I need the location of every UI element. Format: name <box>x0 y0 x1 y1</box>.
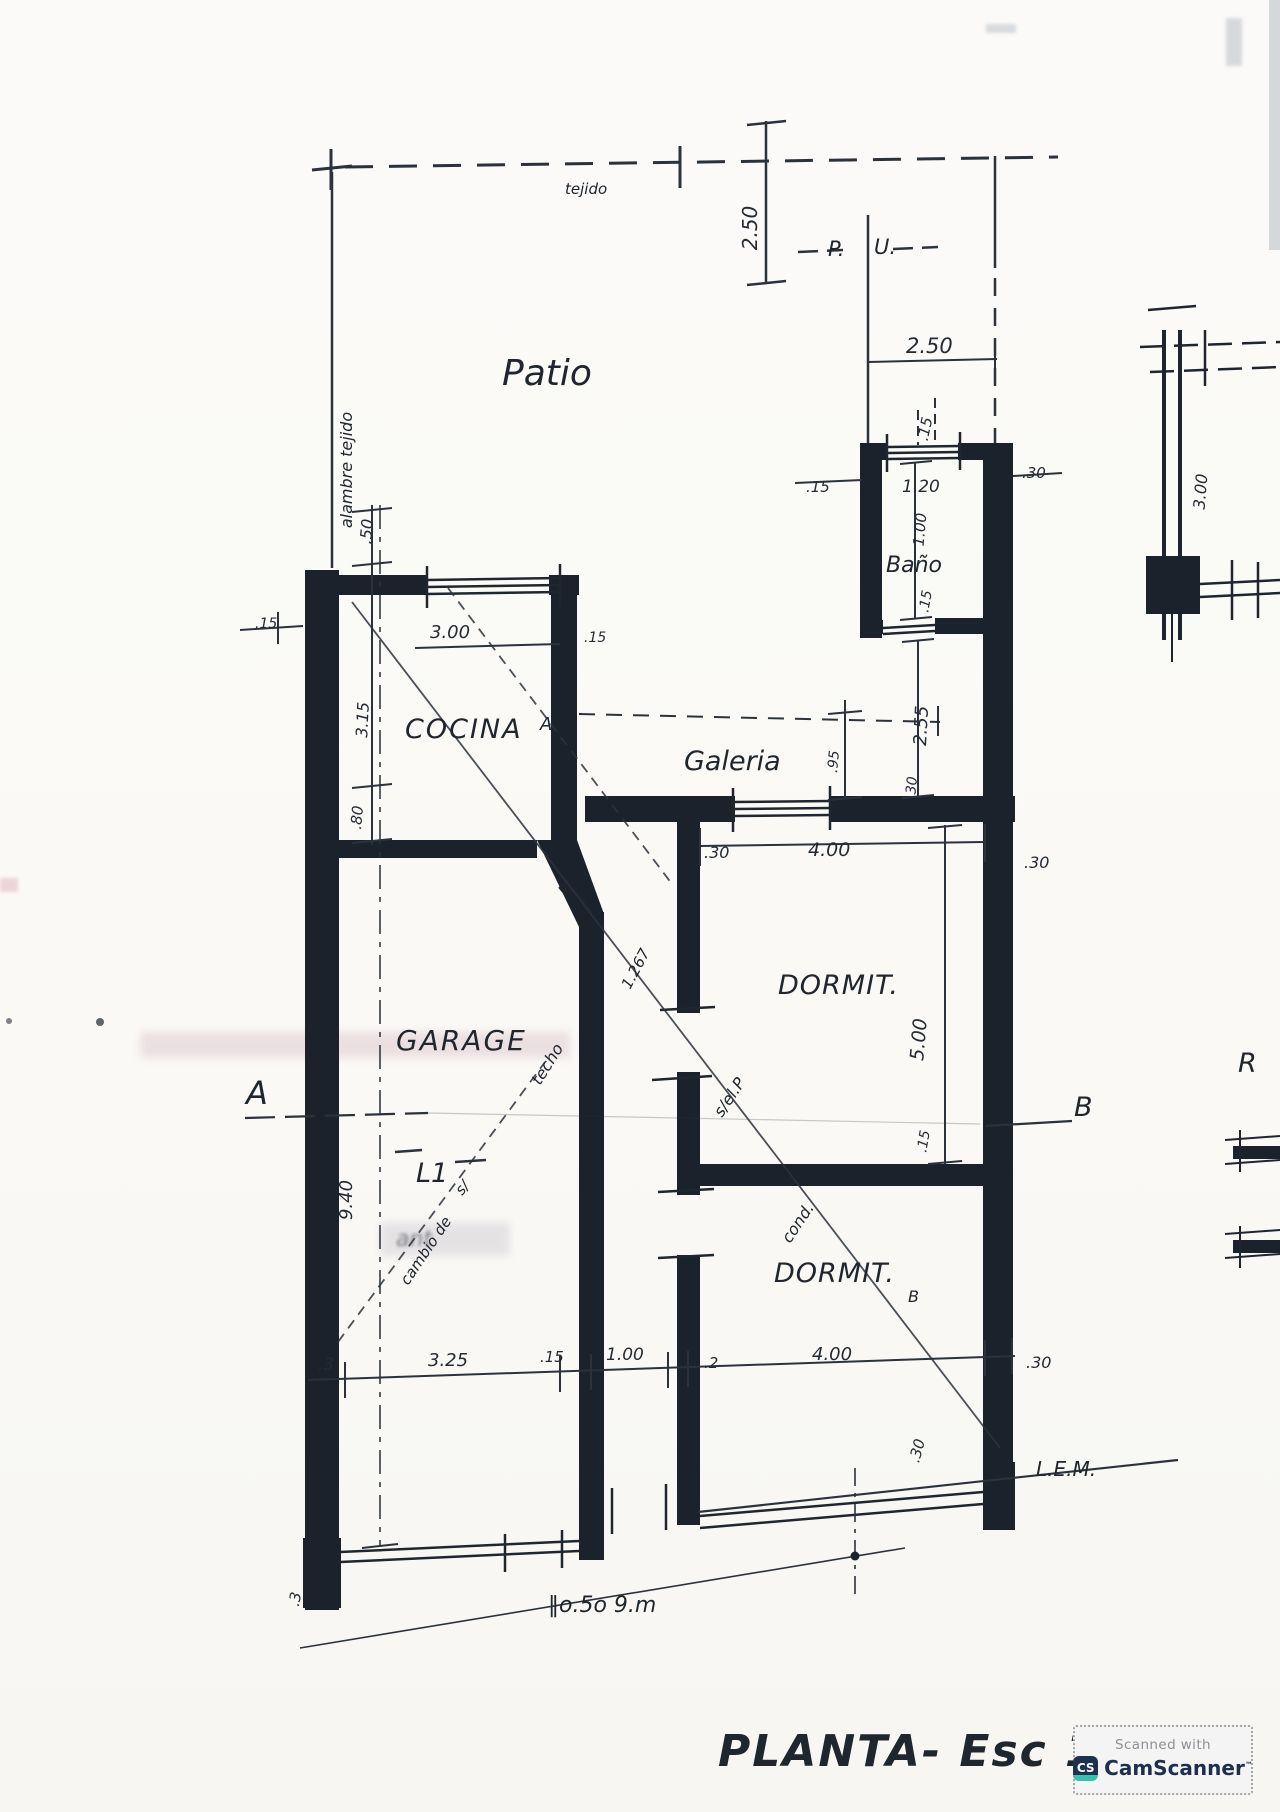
note-lot-width: ‖o.5o 9.m <box>548 1593 656 1618</box>
dim-bottom-paso: 1.00 <box>606 1345 644 1365</box>
dim-bano-right-wall: .30 <box>1022 464 1046 482</box>
dim-bano-bottom-wall: .15 <box>916 589 936 614</box>
dim-bottom-left-wall: .3 <box>318 1355 334 1375</box>
note-alambre-tejido: alambre tejido <box>337 412 356 528</box>
right-edge-fragments <box>1140 306 1280 1268</box>
beam-note: s/ <box>451 1176 474 1199</box>
dim-galeria-width-wall: .30 <box>1024 853 1049 872</box>
room-label-galeria: Galeria <box>684 746 781 777</box>
dim-galeria-offset: .30 <box>704 843 729 862</box>
beam-marker-l1: L1 <box>416 1158 448 1189</box>
dim-divider-wall: .15 <box>914 1129 934 1154</box>
dim-patio-height: 2.50 <box>738 206 762 251</box>
fragment-r-marker: R <box>1238 1048 1257 1079</box>
dim-galeria-height: .95 <box>825 750 843 774</box>
room-label-dormit-2: DORMIT. <box>774 1258 895 1289</box>
dim-cocina-depth: 3.15 <box>352 701 373 738</box>
dim-galeria-width: 4.00 <box>808 839 850 861</box>
dim-bottom-right-wall: .30 <box>1026 1353 1051 1372</box>
dimension-labels: 2.50 2.50 .15 1.20 .15 .30 1.00 .15 2.55… <box>255 206 1212 1608</box>
dim-bano-depth: 1.00 <box>910 512 931 547</box>
badge-brand-text: CamScanner™ <box>1104 1758 1253 1778</box>
dim-dormit1-depth: 5.00 <box>906 1017 932 1061</box>
dim-cocina-80: .80 <box>347 805 367 830</box>
section-marker-b: B <box>1074 1092 1093 1123</box>
dim-galeria-east-wall: .30 <box>903 776 921 800</box>
note-1267: 1.267 <box>618 945 654 992</box>
dim-bottom-wall1: .15 <box>540 1348 564 1366</box>
brand-name: CamScanner <box>1104 1756 1245 1780</box>
dim-patio-width: 2.50 <box>906 334 953 358</box>
dim-bottom-garage: 3.25 <box>428 1350 468 1371</box>
room-label-garage: GARAGE <box>396 1024 527 1057</box>
bleed-through-text: ant <box>396 1227 433 1252</box>
galeria-a-marker: A <box>539 714 552 735</box>
trademark-symbol: ™ <box>1245 1761 1253 1770</box>
scan-artifacts <box>0 0 1280 1256</box>
note-gate-p: P. <box>828 237 844 261</box>
dim-left-foot: .3 <box>285 1591 305 1608</box>
dim-corner-30: .30 <box>905 1437 929 1465</box>
note-cond: cond. <box>778 1199 818 1246</box>
dim-cocina-east-wall: .15 <box>584 630 606 646</box>
note-lem: L.E.M. <box>1036 1457 1096 1481</box>
room-label-patio: Patio <box>502 353 592 394</box>
section-marker-a: A <box>244 1074 268 1112</box>
small-b-marker: B <box>908 1287 919 1306</box>
windows-and-doors <box>340 432 983 1572</box>
dim-bottom-wall2: .2 <box>704 1354 718 1372</box>
dim-bano-left-wall: .15 <box>806 478 830 496</box>
room-label-dormit-1: DORMIT. <box>778 970 899 1001</box>
dim-strip-50: .50 <box>356 518 377 545</box>
room-label-bano: Baño <box>886 553 942 578</box>
dim-galeria-east: 2.55 <box>910 705 933 746</box>
dim-garage-depth: 9.40 <box>336 1180 357 1220</box>
dim-fragment: 3.00 <box>1190 473 1212 510</box>
dim-cocina-window: 3.00 <box>430 622 470 643</box>
room-label-cocina: COCINA <box>405 714 523 745</box>
dim-bano-top-wall: .15 <box>914 415 937 442</box>
note-tejido: tejido <box>565 180 607 198</box>
scanned-floor-plan-page: Patio COCINA Galeria Baño DORMIT. DORMIT… <box>0 0 1280 1812</box>
note-gate-u: U. <box>874 235 896 259</box>
dim-bottom-dorm: 4.00 <box>812 1344 852 1365</box>
dim-cocina-left-wall: .15 <box>255 616 277 632</box>
dim-bano-width: 1.20 <box>902 477 940 497</box>
camscanner-icon: CS <box>1073 1756 1098 1781</box>
badge-scanned-with-text: Scanned with <box>1115 1739 1211 1753</box>
site-annotations: tejido alambre tejido P. U. L.E.M. ‖o.5o… <box>337 180 1096 1618</box>
floor-plan-drawing: Patio COCINA Galeria Baño DORMIT. DORMIT… <box>0 0 1280 1812</box>
camscanner-badge: Scanned with CS CamScanner™ <box>1073 1725 1253 1795</box>
